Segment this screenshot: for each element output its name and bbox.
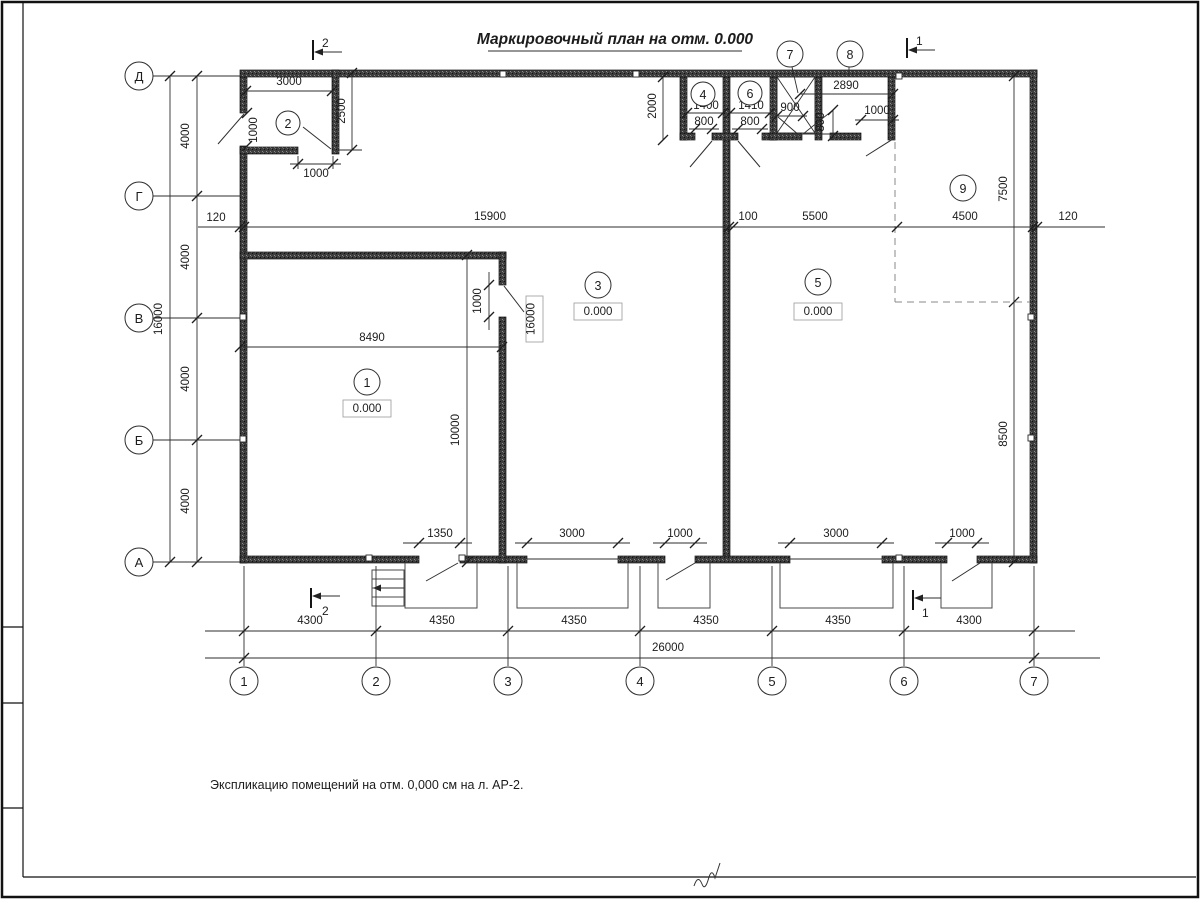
section-mark-top-2: 2 bbox=[322, 36, 329, 50]
signature-squiggle bbox=[694, 863, 720, 887]
dim-bottom-span: 4350 bbox=[693, 615, 719, 627]
dim-mid: 120 bbox=[1058, 211, 1077, 223]
dim-bottom-span: 4300 bbox=[956, 615, 982, 627]
dim-bottom-span: 4350 bbox=[825, 615, 851, 627]
dim-left-span: 4000 bbox=[180, 123, 192, 149]
dim-door: 1000 bbox=[949, 528, 975, 540]
col-axis-label: 6 bbox=[900, 674, 907, 689]
walls bbox=[240, 70, 1037, 563]
dim-shaft-door: 900 bbox=[780, 102, 799, 114]
dim-left-span: 4000 bbox=[180, 244, 192, 270]
col-axis-label: 7 bbox=[1030, 674, 1037, 689]
row-axis-label: Д bbox=[135, 69, 144, 84]
dim-left-wall-door: 1000 bbox=[248, 117, 260, 143]
room5-number: 5 bbox=[815, 276, 822, 290]
col-axis-label: 3 bbox=[504, 674, 511, 689]
col-axis-label: 2 bbox=[372, 674, 379, 689]
dim-room9-depth: 7500 bbox=[998, 176, 1010, 202]
row-axis-label: Б bbox=[135, 433, 144, 448]
col-axis-label: 4 bbox=[636, 674, 643, 689]
wall-mark-label: 16000 bbox=[526, 303, 538, 335]
dim-mid: 4500 bbox=[952, 211, 978, 223]
room6-number: 6 bbox=[747, 87, 754, 101]
entrance-stairs bbox=[372, 570, 404, 606]
dim-left-total: 16000 bbox=[153, 303, 165, 335]
dim-room8-door: 1000 bbox=[864, 105, 890, 117]
dim-room1-width: 8490 bbox=[359, 332, 385, 344]
room2-number: 2 bbox=[285, 117, 292, 131]
room1-number: 1 bbox=[364, 376, 371, 390]
dim-bottom-total: 26000 bbox=[652, 642, 684, 654]
room8-number: 8 bbox=[847, 48, 854, 62]
row-axis-label: В bbox=[135, 311, 144, 326]
title-block: Маркировочный план на отм. 0.000 bbox=[477, 31, 754, 51]
col-axis-label: 1 bbox=[240, 674, 247, 689]
room1-elevation: 0.000 bbox=[353, 403, 382, 415]
row-axis-label: Г bbox=[135, 189, 142, 204]
room5-elevation: 0.000 bbox=[804, 306, 833, 318]
dim-room2-width: 3000 bbox=[276, 76, 302, 88]
dim-bottom-span: 4350 bbox=[429, 615, 455, 627]
section-mark-bottom-1: 1 bbox=[922, 606, 929, 620]
middle-dimension-line: 120 15900 100 5500 4500 120 bbox=[198, 211, 1105, 232]
dim-mid: 100 bbox=[738, 211, 757, 223]
dim-room8-width: 2890 bbox=[833, 80, 859, 92]
room-labels: 1 0.000 2 3 0.000 4 5 0.000 6 7 8 9 bbox=[276, 41, 976, 417]
dim-mid: 120 bbox=[206, 212, 225, 224]
dim-room2-door: 1000 bbox=[303, 168, 329, 180]
dim-door: 1350 bbox=[427, 528, 453, 540]
col-axis-label: 5 bbox=[768, 674, 775, 689]
left-dimensions: 4000 4000 4000 4000 16000 bbox=[153, 71, 202, 567]
dim-room2-depth: 2500 bbox=[336, 98, 348, 124]
room2-dimensions: 3000 2500 1000 1000 bbox=[241, 68, 362, 180]
dim-room4-door: 800 bbox=[694, 116, 713, 128]
note-text: Экспликацию помещений на отм. 0,000 см н… bbox=[210, 778, 523, 792]
dim-left-span: 4000 bbox=[180, 366, 192, 392]
room4-number: 4 bbox=[700, 88, 707, 102]
dim-room6-door: 800 bbox=[740, 116, 759, 128]
room9-number: 9 bbox=[960, 182, 967, 196]
bottom-door-dimensions: 1350 3000 1000 3000 1000 bbox=[403, 528, 989, 548]
dim-bottom-span: 4300 bbox=[297, 615, 323, 627]
dim-room1-door: 1000 bbox=[472, 288, 484, 314]
room3-number: 3 bbox=[595, 279, 602, 293]
dim-door: 3000 bbox=[823, 528, 849, 540]
floor-plan-canvas: Маркировочный план на отм. 0.000 bbox=[0, 0, 1200, 900]
page-title: Маркировочный план на отм. 0.000 bbox=[477, 31, 754, 48]
dim-top-depth: 2000 bbox=[647, 93, 659, 119]
section-mark-top-1: 1 bbox=[916, 34, 923, 48]
dim-right-span: 8500 bbox=[998, 421, 1010, 447]
section-mark-bottom-2: 2 bbox=[322, 604, 329, 618]
dim-left-span: 4000 bbox=[180, 488, 192, 514]
doors bbox=[218, 114, 980, 581]
room7-number: 7 bbox=[787, 48, 794, 62]
room3-elevation: 0.000 bbox=[584, 306, 613, 318]
bottom-dimensions: 4300 4350 4350 4350 4350 4300 26000 1 2 … bbox=[205, 566, 1100, 695]
right-dimensions: 7500 8500 bbox=[998, 71, 1019, 567]
row-axis-label: А bbox=[135, 555, 144, 570]
dim-bottom-span: 4350 bbox=[561, 615, 587, 627]
drawing-sheet: Маркировочный план на отм. 0.000 bbox=[0, 0, 1200, 900]
dim-door: 1000 bbox=[667, 528, 693, 540]
dim-mid: 5500 bbox=[802, 211, 828, 223]
column-markers bbox=[240, 71, 1034, 561]
dim-room1-depth: 10000 bbox=[450, 414, 462, 446]
dim-door: 3000 bbox=[559, 528, 585, 540]
dim-mid: 15900 bbox=[474, 211, 506, 223]
dim-ramp: 800 bbox=[815, 112, 827, 131]
